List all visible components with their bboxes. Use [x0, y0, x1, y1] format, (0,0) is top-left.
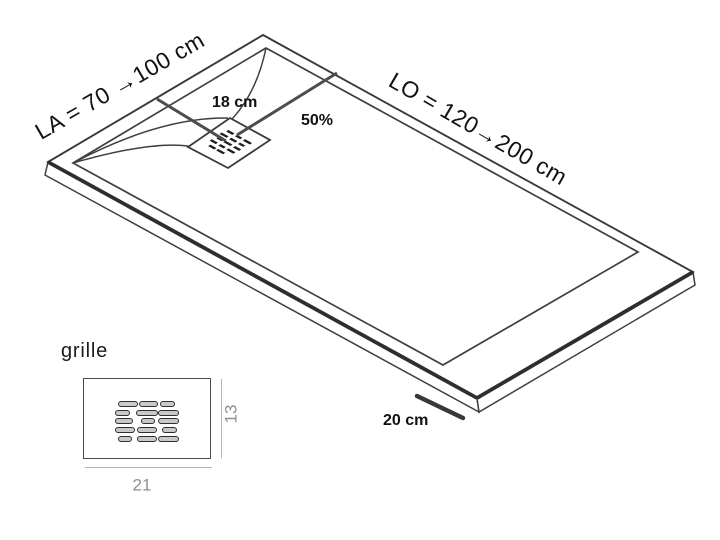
- grille-width-label: 21: [133, 477, 152, 494]
- grille-slot: [115, 418, 133, 424]
- grille-slot: [115, 410, 130, 416]
- grille-slot: [139, 401, 158, 407]
- grille-slot: [137, 436, 157, 442]
- grille-slot: [141, 418, 155, 424]
- shower-tray-dimension-diagram: LA = 70 →100 cm LO = 120→200 cm 18 cm 50…: [0, 0, 720, 540]
- border-width-label: 20 cm: [383, 413, 428, 429]
- grille-slot: [162, 427, 177, 433]
- grille-slot: [136, 410, 158, 416]
- grille-slot: [115, 427, 135, 433]
- grille-slot: [160, 401, 175, 407]
- grille-slot: [137, 427, 157, 433]
- grille-slot: [118, 401, 138, 407]
- grille-detail-drawing: [83, 378, 211, 459]
- grille-width-dim-line: [85, 467, 212, 468]
- grille-inset-title: grille: [61, 340, 108, 363]
- grille-slot: [158, 418, 179, 424]
- grille-slot: [118, 436, 132, 442]
- grille-height-label: 13: [223, 405, 240, 424]
- drain-position-label: 50%: [301, 113, 333, 129]
- drain-distance-label: 18 cm: [212, 95, 257, 111]
- grille-slot: [158, 436, 179, 442]
- grille-slot: [158, 410, 179, 416]
